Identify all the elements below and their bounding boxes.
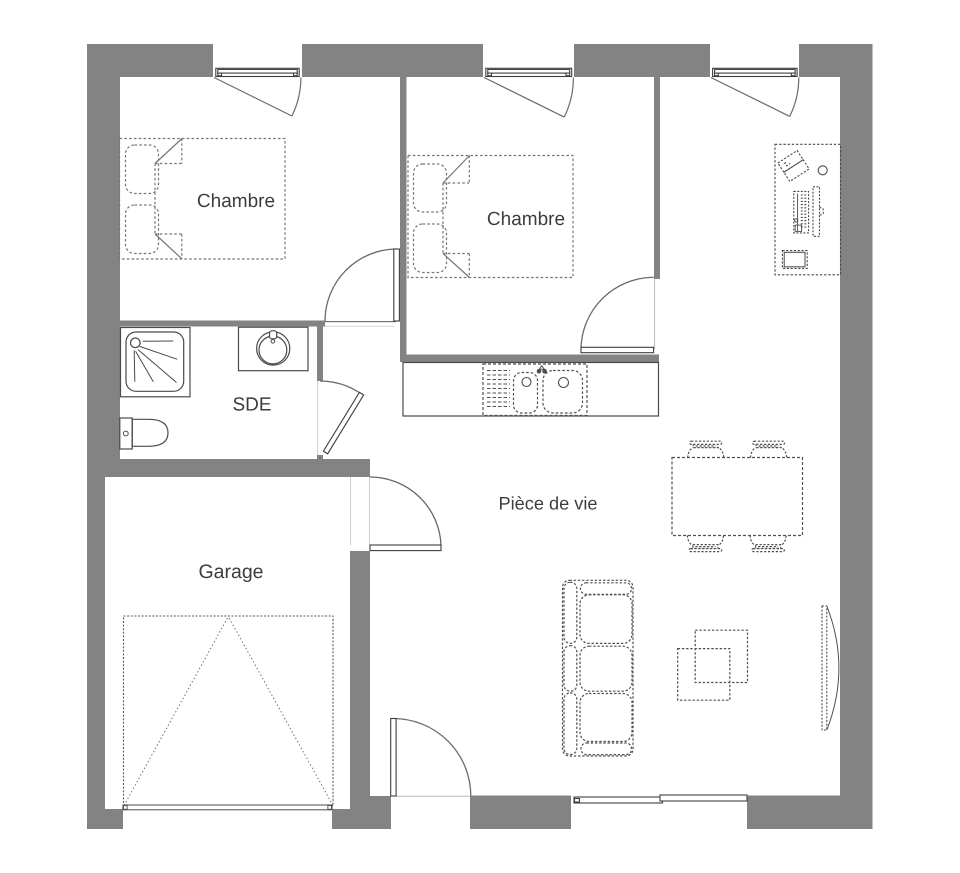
svg-text:Garage: Garage	[198, 561, 263, 583]
svg-text:Chambre: Chambre	[197, 191, 275, 212]
svg-text:SDE: SDE	[232, 395, 271, 416]
svg-text:Pièce de vie: Pièce de vie	[498, 494, 597, 514]
svg-text:Chambre: Chambre	[487, 209, 565, 230]
